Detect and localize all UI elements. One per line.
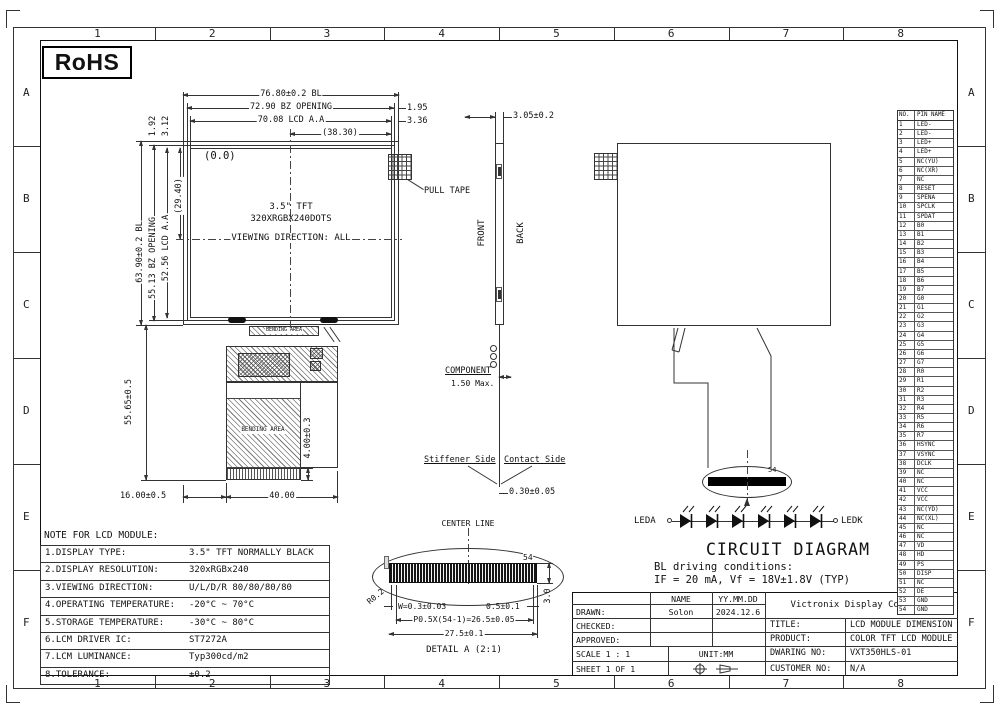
tb-name-header: NAME xyxy=(671,595,691,604)
dim-detail-w: W=0.3±0.03 xyxy=(398,602,446,611)
pin-row: 51NC xyxy=(898,579,953,588)
zone-row-right-D: D xyxy=(967,405,976,418)
pin-row: 36HSYNC xyxy=(898,441,953,450)
pin-row: 7NC xyxy=(898,176,953,185)
pin-row: 14B2 xyxy=(898,240,953,249)
pin-row: 39NC xyxy=(898,469,953,478)
pin-name: G6 xyxy=(915,350,953,358)
pin-no: 48 xyxy=(898,551,915,559)
pin-row: 49PS xyxy=(898,561,953,570)
leda-label: LEDA xyxy=(634,516,656,526)
pin-row: 40NC xyxy=(898,478,953,487)
zone-tick xyxy=(499,676,500,689)
zone-tick xyxy=(13,252,40,253)
ext-line xyxy=(141,480,226,481)
pin-no: 30 xyxy=(898,387,915,395)
pin-no: 26 xyxy=(898,350,915,358)
zone-tick xyxy=(729,676,730,689)
ext-line xyxy=(226,483,227,503)
pin-no: 50 xyxy=(898,570,915,578)
center-line-label: CENTER LINE xyxy=(442,519,495,528)
pin-no: 14 xyxy=(898,240,915,248)
component-block xyxy=(238,353,290,377)
pin-row: 32R4 xyxy=(898,405,953,414)
note-value: U/L/D/R 80/80/80/80 xyxy=(189,581,292,596)
tb-approved-label: APPROVED: xyxy=(576,636,620,645)
zone-row-left-C: C xyxy=(22,299,31,312)
pin-row: 30R2 xyxy=(898,387,953,396)
pin-row: 43NC(YD) xyxy=(898,506,953,515)
ext-line xyxy=(183,92,184,141)
pin-name: RESET xyxy=(915,185,953,193)
back-pin54-label: 54 xyxy=(768,466,776,474)
ext-line xyxy=(537,585,538,638)
pin-name: NC(YU) xyxy=(915,158,953,166)
pin-row: 44NC(XL) xyxy=(898,515,953,524)
fpc-body-divider xyxy=(300,382,301,468)
zone-tick xyxy=(729,27,730,40)
component-bump xyxy=(490,353,497,360)
note-label: 7.LCM LUMINANCE: xyxy=(45,650,132,665)
pin-no: 49 xyxy=(898,561,915,569)
zone-tick xyxy=(958,146,986,147)
pin-row: 45NC xyxy=(898,524,953,533)
pin-no: 35 xyxy=(898,432,915,440)
tb-scale: SCALE 1 : 1 xyxy=(576,650,630,659)
dim-fpc-height: 55.65±0.5 xyxy=(125,378,135,426)
bezel-tab-left xyxy=(228,317,246,323)
note-label: 6.LCM DRIVER IC: xyxy=(45,633,132,648)
component-bump xyxy=(490,345,497,352)
pin-no: 19 xyxy=(898,286,915,294)
dim-line-detail-height xyxy=(549,563,550,583)
tb-drawn-date: 2024.12.6 xyxy=(716,608,760,617)
pin-row: 26G6 xyxy=(898,350,953,359)
dim-line-component xyxy=(499,377,511,378)
pin-no: 45 xyxy=(898,524,915,532)
pin-table: NO. PIN NAME 1LED-2LED-3LED+4LED+5NC(YU)… xyxy=(897,110,954,615)
zone-tick xyxy=(155,27,156,40)
pin-row: 31R3 xyxy=(898,396,953,405)
pin-row: 46NC xyxy=(898,533,953,542)
tb-line xyxy=(712,592,713,646)
pin-name: VD xyxy=(915,542,953,550)
pin-no: 24 xyxy=(898,332,915,340)
zone-tick xyxy=(13,570,40,571)
pin-no: 27 xyxy=(898,359,915,367)
leader-line xyxy=(499,493,508,494)
note-label: 4.OPERATING TEMPERATURE: xyxy=(45,598,175,613)
pin-no: 16 xyxy=(898,258,915,266)
zone-col-bottom-8: 8 xyxy=(896,678,905,691)
component-block-small xyxy=(310,348,323,359)
note-row: 5.STORAGE TEMPERATURE:-30°C ~ 80°C xyxy=(40,616,330,633)
tb-checked-label: CHECKED: xyxy=(576,622,615,631)
note-value: -30°C ~ 80°C xyxy=(189,616,254,631)
pin-name: LED- xyxy=(915,130,953,138)
dim-fpc-width: 40.00 xyxy=(268,492,296,502)
pin-name: GND xyxy=(915,597,953,605)
tb-line xyxy=(572,618,958,619)
pin-name: NC xyxy=(915,533,953,541)
pin-no: 12 xyxy=(898,222,915,230)
side-back-label: BACK xyxy=(516,222,526,244)
pin-row: 42VCC xyxy=(898,496,953,505)
pin-row: 35R7 xyxy=(898,432,953,441)
pin-name: NC(XL) xyxy=(915,515,953,523)
pin-name: LED- xyxy=(915,121,953,129)
zone-row-left-E: E xyxy=(22,511,31,524)
pin-row: 27G7 xyxy=(898,359,953,368)
pin-name: NC(XR) xyxy=(915,167,953,175)
note-label: 2.DISPLAY RESOLUTION: xyxy=(45,563,159,578)
zone-tick xyxy=(384,676,385,689)
zone-col-top-8: 8 xyxy=(896,28,905,41)
pin-no: 1 xyxy=(898,121,915,129)
zone-row-left-A: A xyxy=(22,87,31,100)
zone-col-top-3: 3 xyxy=(323,28,332,41)
pin-no: 39 xyxy=(898,469,915,477)
pin-row: 23G3 xyxy=(898,322,953,331)
pin-no: 53 xyxy=(898,597,915,605)
back-view-outline xyxy=(617,143,831,326)
side-view-tab-bottom-fill xyxy=(498,290,501,299)
pin-row: 11SPDAT xyxy=(898,213,953,222)
side-front-label: FRONT xyxy=(477,219,487,246)
pin-name: NC xyxy=(915,478,953,486)
zone-tick xyxy=(270,27,271,40)
pin-no: 46 xyxy=(898,533,915,541)
pin-row: 4LED+ xyxy=(898,148,953,157)
pin-row: 20G0 xyxy=(898,295,953,304)
notes-table: 1.DISPLAY TYPE:3.5" TFT NORMALLY BLACK2.… xyxy=(40,545,330,685)
zone-tick xyxy=(958,570,986,571)
note-value: 320xRGBx240 xyxy=(189,563,249,578)
detail-contact-strip xyxy=(389,563,537,583)
dim-aa-width: 70.08 LCD A.A xyxy=(257,116,326,126)
pin-no: 6 xyxy=(898,167,915,175)
fpc-bending-area-label: BENDING AREA xyxy=(240,427,285,434)
note-value: ±0.2 xyxy=(189,668,211,683)
pin-no: 29 xyxy=(898,377,915,385)
leda-terminal xyxy=(667,518,672,523)
pin-row: 17B5 xyxy=(898,268,953,277)
tb-line xyxy=(572,646,958,647)
dim-bl-height: 63.90±0.2 BL xyxy=(136,220,146,283)
pin-name: VCC xyxy=(915,496,953,504)
pin-no: 51 xyxy=(898,579,915,587)
pin-no: 10 xyxy=(898,203,915,211)
detail-title: DETAIL A (2:1) xyxy=(426,645,502,655)
origin-label: (0.0) xyxy=(204,150,236,162)
dim-detail-gap: 0.5±0.1 xyxy=(486,602,520,611)
pin-name: LED+ xyxy=(915,148,953,156)
pin-name: R7 xyxy=(915,432,953,440)
zone-tick xyxy=(958,464,986,465)
pin-no: 22 xyxy=(898,313,915,321)
pin-row: 19B7 xyxy=(898,286,953,295)
leader-line xyxy=(399,121,406,122)
pin-name: R0 xyxy=(915,368,953,376)
pin-row: 38DCLK xyxy=(898,460,953,469)
component-label: COMPONENT xyxy=(445,367,491,377)
front-text-size: 3.5" TFT xyxy=(269,202,312,212)
note-label: 5.STORAGE TEMPERATURE: xyxy=(45,616,164,631)
zone-tick xyxy=(843,27,844,40)
pin-no: 25 xyxy=(898,341,915,349)
pin-no: 4 xyxy=(898,148,915,156)
pin-name: B7 xyxy=(915,286,953,294)
pin-no: 28 xyxy=(898,368,915,376)
dim-stiffener: 0.30±0.05 xyxy=(509,488,555,498)
pin-name: R4 xyxy=(915,405,953,413)
pin-no: 31 xyxy=(898,396,915,404)
side-fpc-tail-line xyxy=(499,325,500,487)
tb-line xyxy=(572,661,958,662)
pin-no: 32 xyxy=(898,405,915,413)
pin-row: 9SPENA xyxy=(898,194,953,203)
dim-right-gap1: 1.95 xyxy=(407,104,427,114)
tb-title-value: LCD MODULE DIMENSION xyxy=(850,621,952,631)
tb-product-value: COLOR TFT LCD MODULE xyxy=(850,635,952,645)
dim-line-contact-height xyxy=(308,468,309,480)
pin-no: 7 xyxy=(898,176,915,184)
pin-row: 21G1 xyxy=(898,304,953,313)
pin-name: R1 xyxy=(915,377,953,385)
zone-tick xyxy=(958,252,986,253)
pin-row: 41VCC xyxy=(898,487,953,496)
pin-no: 20 xyxy=(898,295,915,303)
pin-name: SPDAT xyxy=(915,213,953,221)
pin-no: 2 xyxy=(898,130,915,138)
dim-bz-height: 55.13 BZ OPENING xyxy=(149,216,159,300)
dim-line-thickness xyxy=(465,117,495,118)
note-value: ST7272A xyxy=(189,633,227,648)
dim-thickness: 3.05±0.2 xyxy=(513,112,554,122)
pin-no: 38 xyxy=(898,460,915,468)
tb-line xyxy=(650,592,651,646)
pin-name: G0 xyxy=(915,295,953,303)
tb-unit: UNIT:MM xyxy=(699,650,734,659)
pin-name: R6 xyxy=(915,423,953,431)
leader-line xyxy=(527,606,539,607)
zone-row-right-B: B xyxy=(967,193,976,206)
dim-half-width: (38.30) xyxy=(321,129,359,139)
fpc-contact-strip xyxy=(226,468,301,480)
pin-no: 34 xyxy=(898,423,915,431)
led-symbols xyxy=(680,504,836,530)
component-block-small xyxy=(310,361,321,371)
pin-row: 34R6 xyxy=(898,423,953,432)
pin-name: R3 xyxy=(915,396,953,404)
tb-sheet: SHEET 1 OF 1 xyxy=(576,665,635,674)
pin-no: 54 xyxy=(898,606,915,614)
pin-row: 18B6 xyxy=(898,277,953,286)
pin-row: 2LED- xyxy=(898,130,953,139)
dim-detail-total: 27.5±0.1 xyxy=(444,629,485,638)
pin-no: 8 xyxy=(898,185,915,193)
tb-line xyxy=(572,632,958,633)
dim-bl-width: 76.80±0.2 BL xyxy=(259,90,322,100)
component-max-label: 1.50 Max. xyxy=(451,379,494,388)
pin-name: GND xyxy=(915,606,953,614)
pin-row: 3LED+ xyxy=(898,139,953,148)
dim-detail-height: 3.0 xyxy=(544,588,554,603)
notes-title: NOTE FOR LCD MODULE: xyxy=(44,531,158,542)
tb-drawing-no-value: VXT350HLS-01 xyxy=(850,649,911,659)
front-text-resolution: 320XRGBX240DOTS xyxy=(250,214,331,224)
ext-line xyxy=(398,92,399,141)
note-row: 2.DISPLAY RESOLUTION:320xRGBx240 xyxy=(40,563,330,580)
tb-date-header: YY.MM.DD xyxy=(718,595,757,604)
pin-name: DISP xyxy=(915,570,953,578)
pin-no: 15 xyxy=(898,249,915,257)
zone-col-top-5: 5 xyxy=(552,28,561,41)
pin-no: 33 xyxy=(898,414,915,422)
rohs-badge: RoHS xyxy=(42,46,132,79)
pin-row: 12B0 xyxy=(898,222,953,231)
zone-tick xyxy=(614,676,615,689)
fpc-bending-strip-label: BENDING AREA xyxy=(265,328,303,334)
zone-col-bottom-7: 7 xyxy=(782,678,791,691)
zone-row-left-F: F xyxy=(22,617,31,630)
pin-name: G1 xyxy=(915,304,953,312)
zone-col-top-7: 7 xyxy=(782,28,791,41)
pin-name: NC xyxy=(915,524,953,532)
pin-row: 8RESET xyxy=(898,185,953,194)
pin-name: R2 xyxy=(915,387,953,395)
dim-bz-width: 72.90 BZ OPENING xyxy=(249,103,333,113)
note-value: 3.5" TFT NORMALLY BLACK xyxy=(189,546,314,561)
dim-half-height: (29.40) xyxy=(175,177,185,215)
tb-drawn-label: DRAWN: xyxy=(576,608,606,617)
note-row: 7.LCM LUMINANCE:Typ300cd/m2 xyxy=(40,650,330,667)
tb-customer-no-value: N/A xyxy=(850,665,865,675)
pin-no: 41 xyxy=(898,487,915,495)
pin-name: SPCLK xyxy=(915,203,953,211)
drawing-sheet: 1122334455667788AABBCCDDEEFF RoHS (0.0) … xyxy=(0,0,1000,713)
pin-row: 48HD xyxy=(898,551,953,560)
pin-name: DE xyxy=(915,588,953,596)
tb-product-label: PRODUCT: xyxy=(770,635,811,645)
tb-drawn-name: Solon xyxy=(669,608,694,617)
pin-no: 52 xyxy=(898,588,915,596)
note-label: 1.DISPLAY TYPE: xyxy=(45,546,126,561)
pin-no: 13 xyxy=(898,231,915,239)
zone-tick xyxy=(13,464,40,465)
dim-top-gap2: 3.12 xyxy=(162,116,172,136)
pin-no: 42 xyxy=(898,496,915,504)
pin-name: PS xyxy=(915,561,953,569)
bl-driving-values: IF = 20 mA, Vf = 18V±1.8V (TYP) xyxy=(654,574,850,586)
pin-no: 17 xyxy=(898,268,915,276)
zone-row-left-B: B xyxy=(22,193,31,206)
dim-line-fpc-offset xyxy=(183,497,226,498)
tb-line xyxy=(765,592,766,676)
tb-line xyxy=(845,618,846,676)
note-value: -20°C ~ 70°C xyxy=(189,598,254,613)
pull-tape-patch-back xyxy=(594,153,618,180)
pin-name: DCLK xyxy=(915,460,953,468)
pin-row: 16B4 xyxy=(898,258,953,267)
trim-mark-top-left xyxy=(6,10,20,28)
pin-row: 54GND xyxy=(898,606,953,614)
dim-detail-pitch: P0.5X(54-1)=26.5±0.05 xyxy=(412,615,515,624)
note-row: 1.DISPLAY TYPE:3.5" TFT NORMALLY BLACK xyxy=(40,545,330,563)
zone-tick xyxy=(384,27,385,40)
pin-name: HD xyxy=(915,551,953,559)
pin-name: NC xyxy=(915,579,953,587)
dim-right-gap2: 3.36 xyxy=(407,117,427,127)
pin-name-header: PIN NAME xyxy=(915,111,953,120)
zone-col-bottom-4: 4 xyxy=(437,678,446,691)
pin-name: B1 xyxy=(915,231,953,239)
zone-tick xyxy=(13,146,40,147)
note-label: 3.VIEWING DIRECTION: xyxy=(45,581,153,596)
dim-contact-height: 4.00±0.3 xyxy=(304,418,314,459)
pin-row: 10SPCLK xyxy=(898,203,953,212)
circuit-diagram-title: CIRCUIT DIAGRAM xyxy=(706,541,870,560)
pin-no: 40 xyxy=(898,478,915,486)
dim-top-gap1: 1.92 xyxy=(149,116,159,136)
zone-col-top-2: 2 xyxy=(208,28,217,41)
pin-row: 50DISP xyxy=(898,570,953,579)
pin-row: 15B3 xyxy=(898,249,953,258)
pin-row: 37VSYNC xyxy=(898,451,953,460)
pin-table-header: NO. PIN NAME xyxy=(898,111,953,121)
zone-tick xyxy=(614,27,615,40)
pull-tape-label: PULL TAPE xyxy=(424,187,470,197)
pin-name: G3 xyxy=(915,322,953,330)
zone-row-right-A: A xyxy=(967,87,976,100)
pin-name: G5 xyxy=(915,341,953,349)
pin-no-header: NO. xyxy=(898,111,915,120)
tb-title-label: TITLE: xyxy=(770,621,801,631)
detail-pin54-label: 54 xyxy=(523,553,533,562)
pin-row: 5NC(YU) xyxy=(898,158,953,167)
pin-row: 22G2 xyxy=(898,313,953,322)
ledk-label: LEDK xyxy=(841,516,863,526)
zone-tick xyxy=(958,358,986,359)
note-row: 8.TOLERANCE:±0.2 xyxy=(40,668,330,685)
note-row: 3.VIEWING DIRECTION:U/L/D/R 80/80/80/80 xyxy=(40,581,330,598)
zone-row-right-F: F xyxy=(967,617,976,630)
pin-name: NC xyxy=(915,176,953,184)
pin-name: B2 xyxy=(915,240,953,248)
dim-fpc-offset: 16.00±0.5 xyxy=(120,492,166,502)
pin-no: 9 xyxy=(898,194,915,202)
pin-name: B6 xyxy=(915,277,953,285)
zone-col-top-6: 6 xyxy=(667,28,676,41)
bl-driving-conditions: BL driving conditions: xyxy=(654,561,793,573)
pin-name: VSYNC xyxy=(915,451,953,459)
pin-row: 1LED- xyxy=(898,121,953,130)
pull-tape-patch-front xyxy=(388,154,412,180)
pin-row: 47VD xyxy=(898,542,953,551)
pin-no: 18 xyxy=(898,277,915,285)
pin-no: 43 xyxy=(898,506,915,514)
pin-name: NC(YD) xyxy=(915,506,953,514)
pin-row: 25G5 xyxy=(898,341,953,350)
leader-line xyxy=(399,108,406,109)
zone-col-bottom-5: 5 xyxy=(552,678,561,691)
pin-name: B4 xyxy=(915,258,953,266)
zone-col-bottom-6: 6 xyxy=(667,678,676,691)
pin-row: 52DE xyxy=(898,588,953,597)
pin-row: 24G4 xyxy=(898,332,953,341)
pin-name: R5 xyxy=(915,414,953,422)
zone-tick xyxy=(13,358,40,359)
